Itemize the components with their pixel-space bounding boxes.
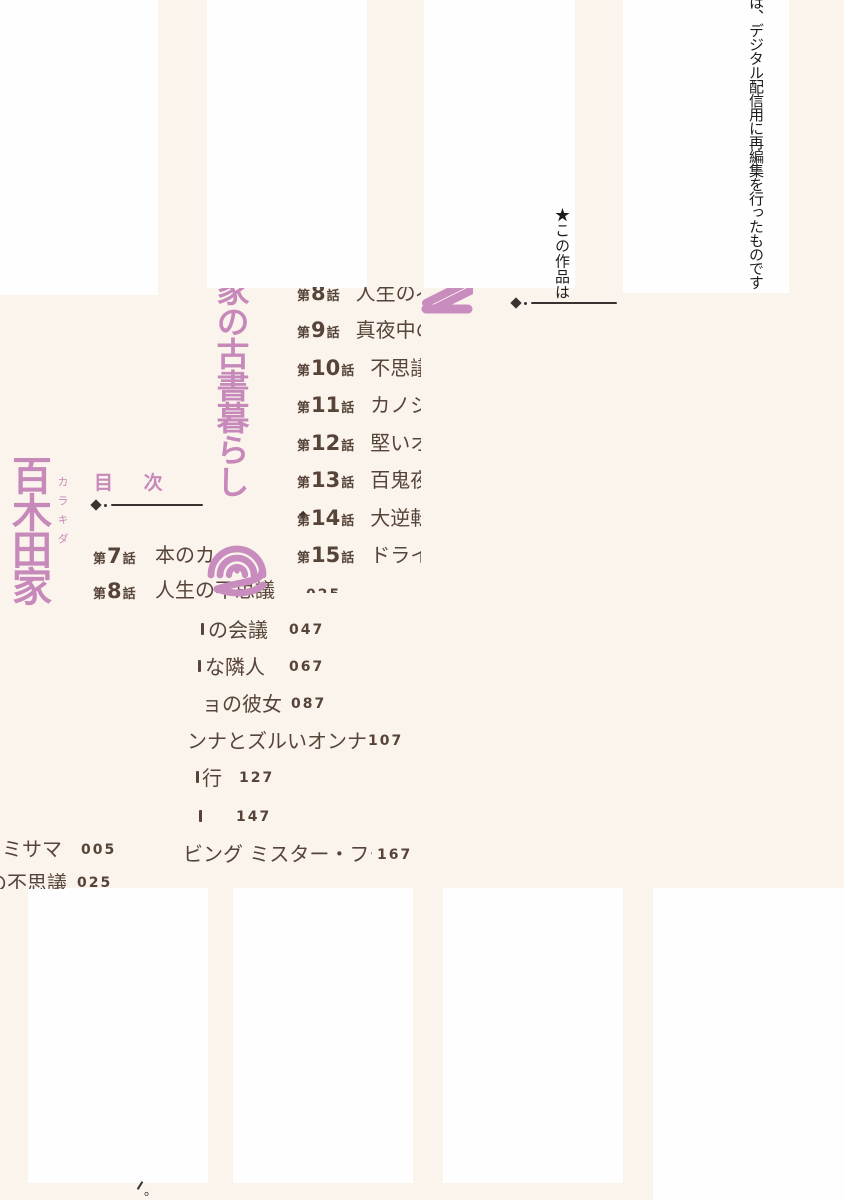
fragment-row-147: 147: [236, 810, 271, 824]
fragment-row-047: の会議: [208, 620, 268, 640]
volume-2-glyph-fragment: [420, 284, 473, 318]
rule-line: [111, 504, 203, 506]
chapter-15-row: 第15話ドライビング ミスター・フー: [297, 545, 421, 566]
glyph-sliver: [198, 660, 201, 672]
stray-period: 。: [144, 1180, 157, 1199]
white-block-bottom-2: [233, 888, 413, 1183]
chapter-9-row: 第9話真夜中の会議: [297, 320, 421, 341]
title-left-column: 百木田家: [8, 455, 48, 615]
title-left-text: 百木田家: [8, 455, 48, 603]
fragment-row-087: ョの彼女: [202, 694, 282, 714]
edition-note-column: は、デジタル配信用に再編集を行ったものです: [748, 0, 782, 298]
title-furigana: カラキダ: [57, 476, 68, 561]
toc-heading: 目 次: [94, 468, 175, 495]
fragment-row-127: 行: [202, 768, 222, 788]
white-block-top-mid-left: [207, 0, 367, 288]
edition-note-start-text: ★この作品は: [554, 207, 569, 300]
chapter-10-row: 第10話不思議な隣人: [297, 358, 421, 379]
chapter-8-page: 025: [306, 584, 338, 593]
fragment-row-067: な隣人: [205, 657, 265, 677]
chapter-12-row: 第12話堅いオンナとズルいオンナ: [297, 433, 421, 454]
ebook-toc-page: は、デジタル配信用に再編集を行ったものです ★この作品は 家の古書暮らし: [0, 0, 844, 1200]
fragment-row-005: ミサマ: [2, 839, 62, 859]
diamond-icon: [90, 499, 101, 510]
diamond-icon: [510, 297, 521, 308]
chapter-7-label: 第7話: [93, 546, 136, 567]
chapter-14-row: 第14話大逆転: [297, 508, 421, 529]
chapter-13-row: 第13話百鬼夜行: [297, 470, 421, 491]
white-block-bottom-3: [443, 888, 623, 1183]
glyph-sliver: [196, 771, 199, 783]
edition-note-start: ★この作品は: [554, 207, 584, 303]
white-block-top-left: [0, 0, 158, 295]
volume-2-glyph: [204, 527, 270, 597]
chapter-8-label: 第8話: [93, 581, 136, 602]
fragment-row-167: ビング ミスター・フー: [186, 844, 372, 865]
glyph-sliver: [201, 623, 204, 635]
dot-icon: [104, 504, 107, 507]
white-block-bottom-4: [653, 888, 844, 1200]
chapter-list-right: 第9話真夜中の会議 第10話不思議な隣人 第11話カノジョの彼女 第12話堅いオ…: [297, 318, 421, 570]
fragment-row-107: ンナとズルいオンナ: [187, 731, 367, 751]
glyph-sliver: [199, 810, 202, 822]
chapter-11-row: 第11話カノジョの彼女: [297, 395, 421, 416]
edition-note-text: は、デジタル配信用に再編集を行ったものです: [748, 0, 763, 289]
fragment-row-025: の不思議 025: [0, 871, 120, 889]
white-block-bottom-1: [28, 888, 208, 1183]
title-middle-text: 家の古書暮らし: [214, 273, 247, 497]
toc-ornament-line: [92, 501, 203, 509]
dot-icon: [524, 302, 527, 305]
title-middle-column: 家の古書暮らし: [214, 273, 254, 503]
chapter-row-partial-8: 第8話 人生の不思議: [297, 287, 421, 304]
